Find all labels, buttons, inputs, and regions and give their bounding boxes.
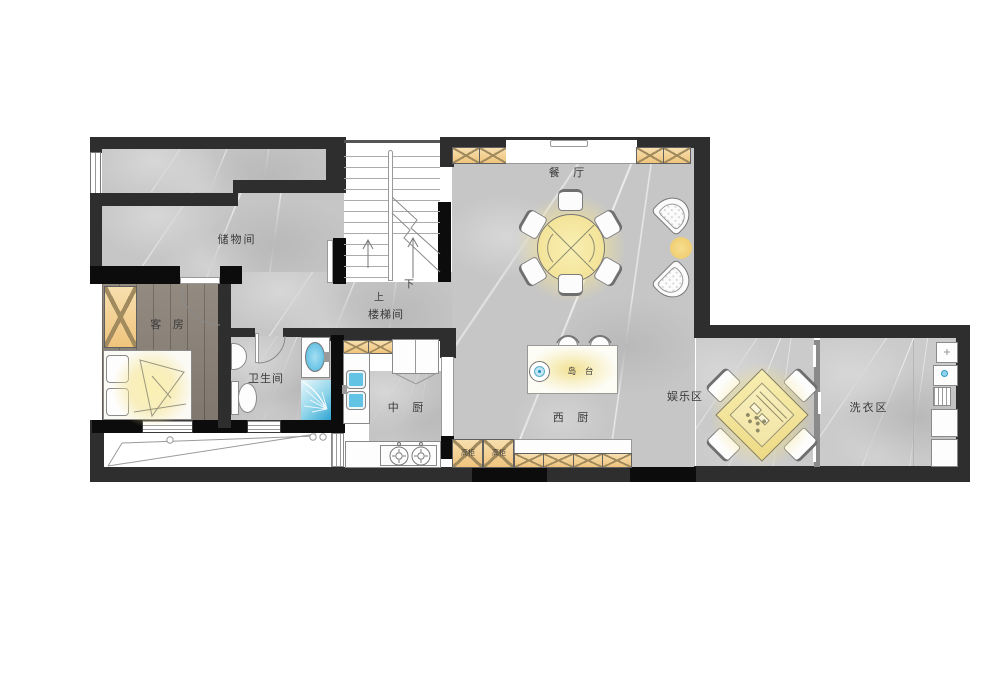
fridge — [392, 339, 439, 374]
label-chinese-kitchen: 中 厨 — [388, 399, 429, 415]
wall-bottom-black-b — [630, 467, 696, 482]
wall-right-outer — [956, 325, 970, 482]
label-laundry: 洗衣区 — [850, 399, 889, 415]
wall-bottom-right — [694, 466, 970, 482]
wall-dining-right — [694, 137, 710, 338]
wall-line-above-stairs — [344, 140, 452, 143]
wall-top-left-block — [90, 137, 346, 149]
dining-window-sill — [550, 140, 588, 147]
cabinet-cell — [664, 148, 690, 163]
window-band-b — [247, 420, 281, 433]
mahjong-table-top — [729, 382, 794, 447]
label-bathroom: 卫生间 — [248, 370, 284, 386]
cabinet-cell — [574, 454, 603, 467]
cabinet-cell — [603, 454, 631, 467]
label-western-kitchen: 西 厨 — [553, 409, 594, 425]
stairs-treads-right — [391, 156, 440, 236]
west-kitchen-base-cabinets — [514, 453, 632, 468]
wall-left-stub — [90, 137, 102, 153]
wall-storage-bottom-b — [220, 266, 242, 284]
label-stairs-up: 上 — [374, 289, 384, 304]
label-entertainment: 娱乐区 — [667, 388, 703, 404]
stairs-center-rail — [388, 150, 393, 281]
wall-stair-left-upper — [326, 137, 346, 190]
kitchen-sink-basin-b — [346, 391, 366, 410]
floor-plan-canvas: 储物间 客 房 卫生间 楼梯间 上 下 餐 厅 岛 台 西 厨 中 厨 娱乐区 … — [0, 0, 1000, 700]
storage-door-leaf — [327, 240, 333, 283]
stairs-treads-left — [344, 156, 391, 281]
dining-cabinet-left — [452, 147, 507, 164]
laundry-drying-rack — [933, 387, 951, 406]
slope-void-area — [103, 432, 345, 468]
vanity-tap — [324, 352, 330, 362]
wall-guest-right — [218, 284, 231, 428]
laundry-sink-basin — [941, 370, 948, 377]
island-sink-drain — [538, 370, 541, 373]
laundry-floor-seam — [913, 340, 914, 466]
wall-storage-bottom-a — [90, 266, 180, 284]
cabinet-cell — [544, 454, 573, 467]
window-kitchen-corner — [331, 433, 344, 467]
dining-chair-bottom — [558, 274, 583, 296]
cabinet-cell — [515, 454, 544, 467]
cabinet-cell — [369, 341, 393, 353]
wall-band-c — [281, 420, 345, 433]
label-storage-room: 储物间 — [218, 231, 257, 247]
wall-bottom-long — [90, 467, 696, 482]
washer — [931, 409, 958, 437]
wall-left-mid — [90, 196, 102, 268]
label-tall-cabinet-a: 高柜 — [461, 448, 475, 458]
label-stairs-down: 下 — [404, 276, 414, 291]
wall-divider-left — [90, 193, 238, 206]
gas-stove — [380, 445, 437, 466]
vanity-basin — [305, 342, 325, 372]
kitchen-sink-tap — [342, 385, 347, 394]
dryer — [931, 439, 958, 467]
dining-chair-top — [558, 189, 583, 211]
wall-bath-top-b — [283, 328, 331, 337]
partition-panel-b — [818, 392, 821, 414]
dining-cabinet-right — [636, 147, 691, 164]
west-kitchen-counter — [514, 439, 632, 454]
wall-bottom-black-a — [472, 467, 547, 482]
label-guest-room: 客 房 — [150, 316, 188, 332]
partition-panel-a — [813, 345, 816, 367]
label-tall-cabinet-b: 高柜 — [492, 448, 506, 458]
label-stair-hall: 楼梯间 — [368, 306, 404, 322]
label-island-counter: 岛 台 — [568, 365, 597, 377]
bath-door-leaf — [255, 333, 259, 363]
cabinet-cell — [105, 287, 136, 347]
label-dining-room: 餐 厅 — [549, 164, 590, 180]
shower-area — [301, 380, 331, 420]
kitchen-sink-basin-a — [346, 370, 366, 389]
guest-door-leaf — [180, 277, 220, 284]
wall-kitchen-right-top — [440, 328, 456, 358]
guest-wardrobe — [104, 286, 137, 348]
cabinet-cell — [453, 148, 480, 163]
laundry-cabinet-box — [936, 342, 958, 363]
wall-bath-top-a — [230, 328, 255, 337]
kitchen-top-cabinet — [343, 340, 393, 354]
kitchen-pass-through — [441, 357, 454, 437]
cabinet-cell — [637, 148, 664, 163]
bed-glow — [112, 348, 192, 428]
cabinet-cell — [480, 148, 506, 163]
toilet-bowl — [238, 383, 257, 413]
window-left-wall — [90, 152, 101, 197]
wall-entertainment-top — [694, 325, 970, 338]
cabinet-cell — [344, 341, 369, 353]
side-table — [670, 237, 692, 259]
